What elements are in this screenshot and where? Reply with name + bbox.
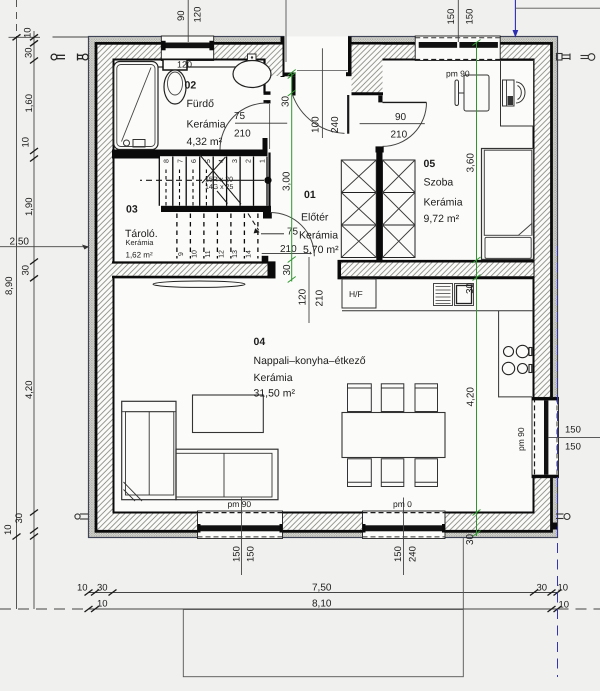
svg-text:30: 30 <box>24 47 35 58</box>
svg-text:30: 30 <box>465 282 476 294</box>
svg-text:8: 8 <box>164 159 171 163</box>
svg-text:6: 6 <box>191 159 198 163</box>
svg-text:10: 10 <box>77 583 88 594</box>
svg-text:02: 02 <box>185 80 197 92</box>
svg-text:7: 7 <box>178 159 185 163</box>
svg-text:150: 150 <box>232 546 243 562</box>
svg-text:120: 120 <box>177 60 192 70</box>
svg-text:10: 10 <box>23 27 34 38</box>
svg-text:210: 210 <box>234 129 251 140</box>
svg-text:pm 90: pm 90 <box>516 427 526 451</box>
svg-text:Kerámia: Kerámia <box>187 119 226 131</box>
svg-text:12: 12 <box>219 250 226 258</box>
svg-text:10: 10 <box>558 583 569 594</box>
svg-text:4,32 m²: 4,32 m² <box>187 136 223 148</box>
svg-text:30: 30 <box>537 583 548 594</box>
svg-text:5,70 m²: 5,70 m² <box>303 244 339 256</box>
svg-text:150: 150 <box>565 425 581 436</box>
svg-text:7,50: 7,50 <box>312 583 332 594</box>
svg-text:pm 0: pm 0 <box>393 499 412 509</box>
svg-text:9,72 m²: 9,72 m² <box>424 213 460 225</box>
svg-text:100: 100 <box>311 116 322 133</box>
svg-text:90: 90 <box>176 10 187 21</box>
svg-text:10: 10 <box>3 524 14 535</box>
svg-text:150: 150 <box>446 9 457 25</box>
svg-text:30: 30 <box>21 265 32 276</box>
svg-text:01: 01 <box>304 189 316 201</box>
svg-text:15R x 20: 15R x 20 <box>205 177 233 184</box>
svg-text:75: 75 <box>287 227 299 238</box>
svg-text:Kerámia: Kerámia <box>424 197 463 209</box>
svg-text:150: 150 <box>393 546 404 562</box>
svg-text:210: 210 <box>391 130 408 141</box>
svg-text:Előtér: Előtér <box>301 212 329 224</box>
svg-text:4: 4 <box>219 159 226 163</box>
svg-text:13: 13 <box>232 250 239 258</box>
svg-text:1,90: 1,90 <box>24 198 35 217</box>
svg-text:150: 150 <box>565 442 581 453</box>
svg-text:3: 3 <box>232 159 239 163</box>
svg-text:1,60: 1,60 <box>24 94 35 113</box>
svg-text:31,50 m²: 31,50 m² <box>254 388 296 400</box>
svg-text:Szoba: Szoba <box>424 177 454 189</box>
svg-text:Nappali–konyha–étkező: Nappali–konyha–étkező <box>254 355 366 367</box>
svg-text:30: 30 <box>14 513 25 524</box>
svg-text:10: 10 <box>97 599 108 610</box>
svg-text:14G x 25: 14G x 25 <box>205 184 234 191</box>
svg-text:120: 120 <box>298 288 309 305</box>
svg-text:30: 30 <box>465 533 476 545</box>
svg-text:pm 90: pm 90 <box>228 499 252 509</box>
svg-text:4,20: 4,20 <box>24 381 35 400</box>
svg-text:Kerámia: Kerámia <box>299 230 338 242</box>
svg-text:05: 05 <box>424 158 436 170</box>
svg-text:3,00: 3,00 <box>282 171 293 191</box>
svg-text:14: 14 <box>246 250 253 258</box>
svg-text:4,20: 4,20 <box>466 387 477 407</box>
svg-text:150: 150 <box>465 9 476 25</box>
svg-text:30: 30 <box>281 95 292 107</box>
svg-text:03: 03 <box>126 204 138 216</box>
svg-text:Fürdő: Fürdő <box>187 98 215 110</box>
svg-text:1: 1 <box>259 159 266 163</box>
svg-text:90: 90 <box>395 112 407 123</box>
svg-text:240: 240 <box>408 546 419 562</box>
svg-text:75: 75 <box>234 111 246 122</box>
svg-text:120: 120 <box>193 7 204 23</box>
svg-text:11: 11 <box>205 250 212 257</box>
svg-text:5: 5 <box>205 159 212 163</box>
svg-text:Kerámia: Kerámia <box>126 238 155 247</box>
svg-text:2,50: 2,50 <box>10 237 30 248</box>
svg-text:30: 30 <box>282 264 293 276</box>
svg-text:210: 210 <box>315 289 326 306</box>
svg-text:2: 2 <box>246 159 253 163</box>
svg-text:3,60: 3,60 <box>466 153 477 173</box>
svg-text:04: 04 <box>254 336 266 348</box>
svg-text:8,90: 8,90 <box>4 277 15 296</box>
svg-text:10: 10 <box>559 600 570 611</box>
svg-text:1,62 m²: 1,62 m² <box>126 251 153 260</box>
svg-text:10: 10 <box>21 137 32 148</box>
svg-text:Kerámia: Kerámia <box>254 372 293 384</box>
svg-text:9: 9 <box>178 252 185 256</box>
svg-text:10: 10 <box>192 250 199 258</box>
svg-text:240: 240 <box>330 116 341 133</box>
svg-text:H/F: H/F <box>349 289 363 299</box>
svg-text:8,10: 8,10 <box>312 599 332 610</box>
svg-text:pm 90: pm 90 <box>446 69 470 79</box>
svg-text:30: 30 <box>97 583 108 594</box>
svg-text:150: 150 <box>246 546 257 562</box>
